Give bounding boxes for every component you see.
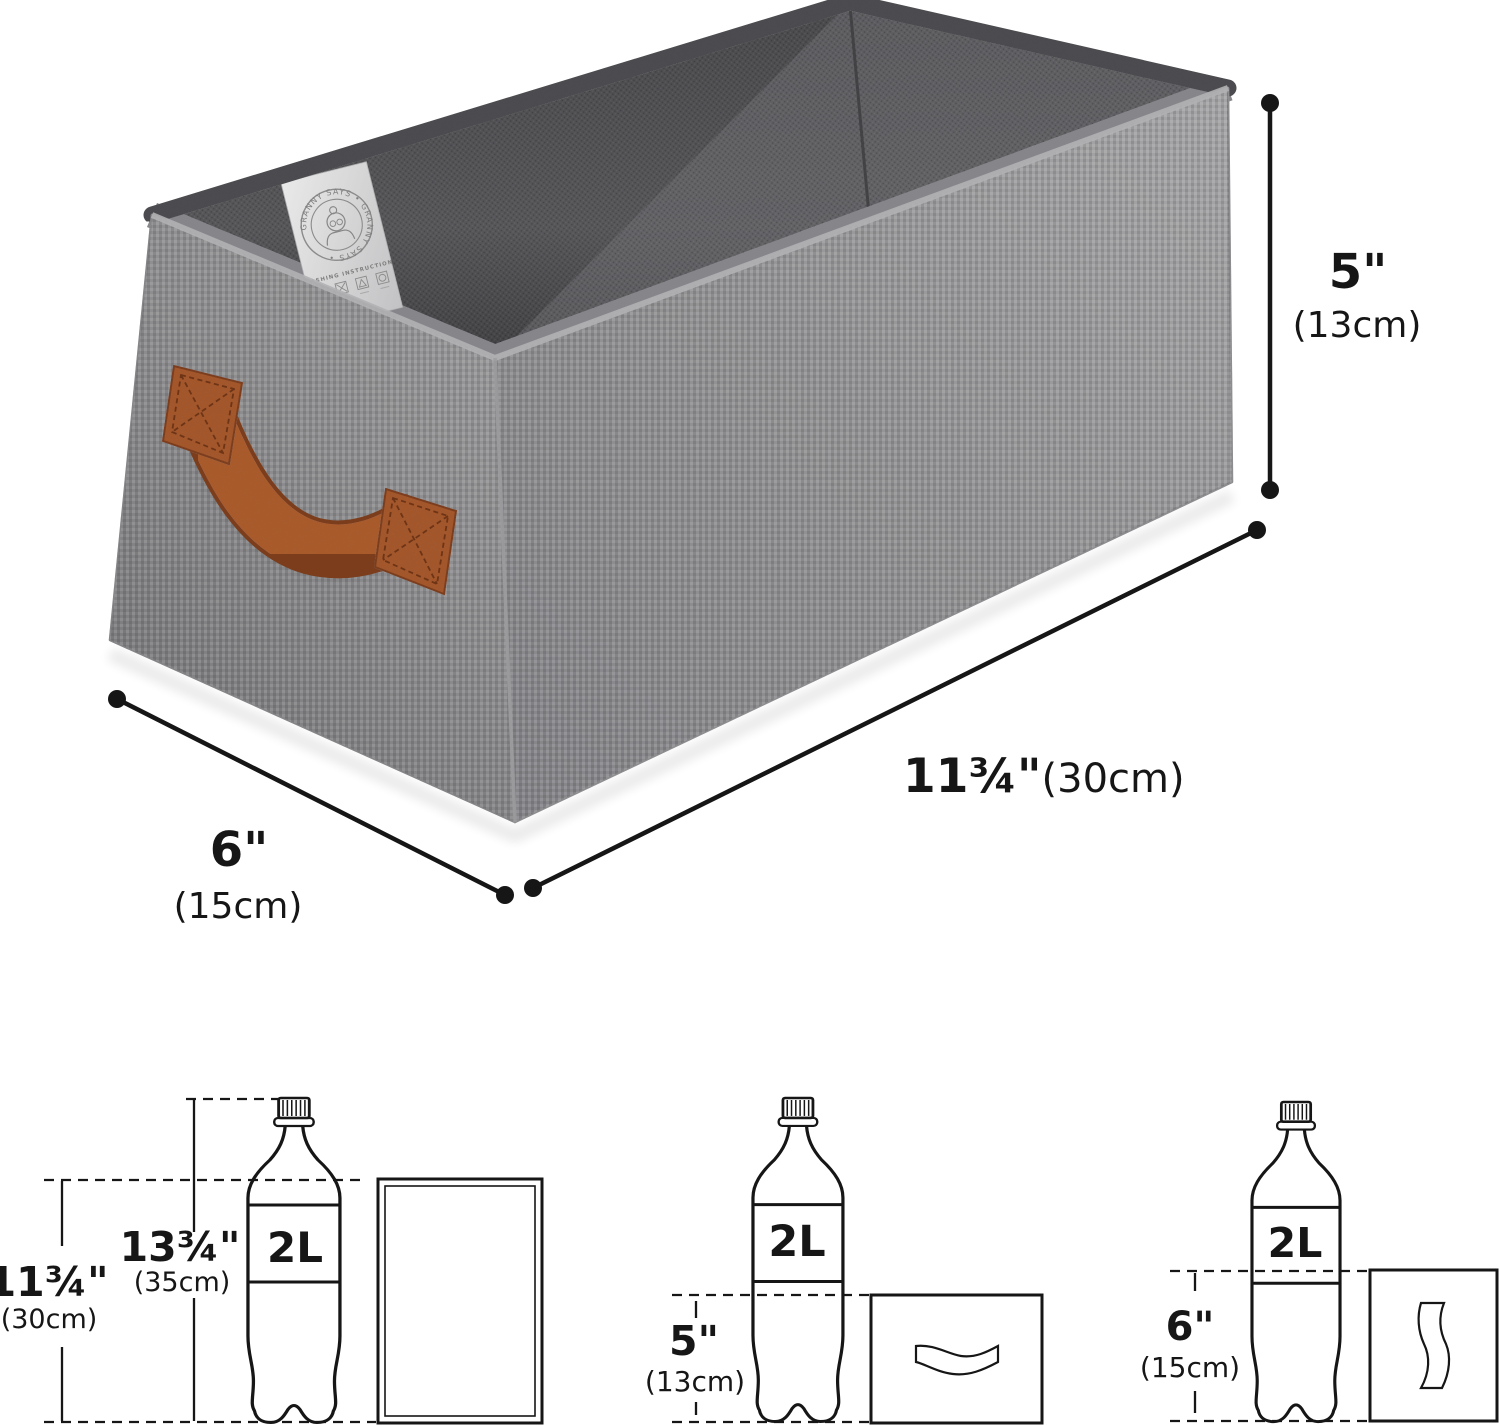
bottle-volume-label: 2L bbox=[1268, 1219, 1323, 1267]
box-height-value: 5" bbox=[669, 1317, 719, 1365]
dimension-endpoint-dot bbox=[108, 690, 126, 708]
product-dimension-page: GRANNY SAYS • GRANNY SAYS • WASHING INST… bbox=[0, 0, 1500, 1426]
dimension-endpoint-dot bbox=[496, 886, 514, 904]
basket-box-outline-side bbox=[1370, 1270, 1497, 1421]
dimension-endpoint-dot bbox=[524, 879, 542, 897]
comparison-right: 2L 6" (15cm) bbox=[1140, 1102, 1497, 1422]
length-label: 11¾"(30cm) bbox=[903, 749, 1185, 804]
comparison-left: 11¾" (30cm) 13¾" (35cm) 2L bbox=[0, 1098, 542, 1423]
basket-box-outline-upright bbox=[378, 1179, 542, 1423]
comparison-middle: 2L 5" (13cm) bbox=[645, 1098, 1042, 1423]
height-metric-label: (13cm) bbox=[1293, 305, 1422, 346]
height-dimension: 5" (13cm) bbox=[1261, 94, 1421, 499]
product-dimension-diagram: GRANNY SAYS • GRANNY SAYS • WASHING INST… bbox=[0, 0, 1500, 1426]
dimension-endpoint-dot bbox=[1261, 481, 1279, 499]
box-height-value: 6" bbox=[1166, 1304, 1215, 1350]
bottle-height-value: 13¾" bbox=[120, 1223, 241, 1271]
box-height-metric: (30cm) bbox=[1, 1304, 98, 1335]
box-height-value: 11¾" bbox=[0, 1258, 108, 1306]
box-height-metric: (15cm) bbox=[1140, 1351, 1240, 1384]
width-value-label: 6" bbox=[210, 822, 268, 878]
basket-illustration: GRANNY SAYS • GRANNY SAYS • WASHING INST… bbox=[110, 2, 1232, 836]
bottle-volume-label: 2L bbox=[267, 1223, 323, 1272]
dimension-endpoint-dot bbox=[1261, 94, 1279, 112]
width-metric-label: (15cm) bbox=[174, 886, 303, 927]
box-height-metric: (13cm) bbox=[645, 1365, 745, 1398]
bottle-volume-label: 2L bbox=[768, 1217, 825, 1267]
bottle-height-metric: (35cm) bbox=[134, 1267, 231, 1298]
dimension-endpoint-dot bbox=[1248, 521, 1266, 539]
height-value-label: 5" bbox=[1329, 244, 1387, 300]
basket-box-outline-front bbox=[871, 1295, 1042, 1423]
